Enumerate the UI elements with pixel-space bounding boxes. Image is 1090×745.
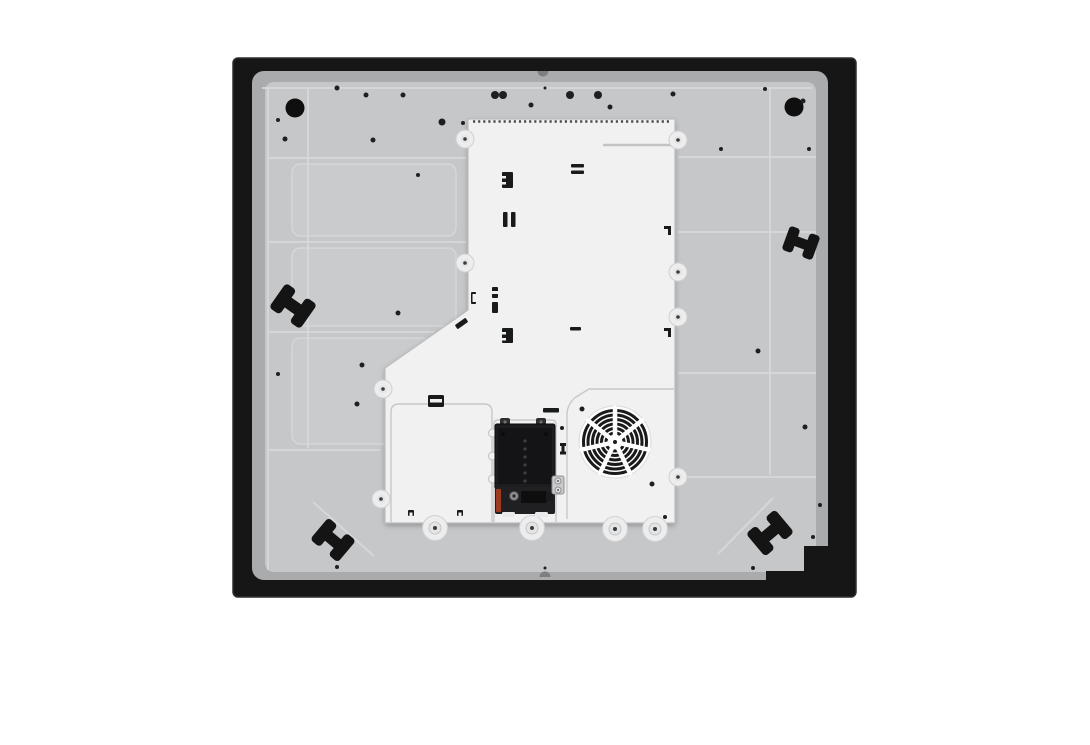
screw-dot: [276, 372, 280, 376]
connector-slit: [492, 291, 498, 294]
hob-underside-illustration: [0, 0, 1090, 745]
screw-dot: [360, 363, 365, 368]
connector-slit: [502, 332, 506, 335]
screw-dot: [803, 425, 808, 430]
screw-dot: [461, 121, 465, 125]
fan-screw: [650, 482, 655, 487]
product-image: [0, 0, 1090, 745]
screw-dot: [811, 535, 815, 539]
screw-dot: [335, 565, 339, 569]
screw-dot: [416, 173, 420, 177]
screw-dot: [594, 91, 602, 99]
screw-dot: [544, 87, 547, 90]
terminal-rivet: [523, 447, 526, 450]
screw-dot: [355, 402, 360, 407]
connector-mark: [668, 228, 671, 235]
fixing-hole: [286, 99, 305, 118]
screw-dot: [396, 311, 401, 316]
terminal-part: [535, 512, 548, 517]
terminal-rivet: [523, 479, 526, 482]
terminal-detail: [503, 420, 506, 423]
terminal-detail: [557, 489, 559, 491]
frame-step: [766, 571, 808, 583]
screw-dot: [283, 137, 288, 142]
connector-mark: [503, 212, 508, 227]
connector-mark: [571, 171, 584, 175]
terminal-part: [496, 489, 501, 512]
connector-mark: [502, 328, 513, 343]
connector-slit: [473, 294, 477, 302]
terminal-part: [521, 491, 547, 503]
screw-dot: [439, 119, 446, 126]
screw-dot: [751, 566, 755, 570]
connector-mark: [668, 330, 671, 337]
screw-dot: [499, 91, 507, 99]
connector-mark: [571, 164, 584, 168]
screw-dot: [401, 93, 406, 98]
connector-mark: [562, 446, 565, 452]
connector-slit: [502, 176, 506, 179]
connector-slit: [410, 513, 413, 517]
terminal-detail: [501, 432, 505, 436]
fan-hub-dot: [613, 440, 617, 444]
stiffening-cell: [292, 248, 456, 326]
terminal-rivet: [523, 455, 526, 458]
terminal-rivet: [523, 471, 526, 474]
screw-dot: [719, 147, 723, 151]
connector-mark: [502, 172, 513, 188]
terminal-detail: [539, 420, 542, 423]
screw-dot: [529, 103, 534, 108]
screw-dot: [364, 93, 369, 98]
screw-dot: [544, 567, 547, 570]
terminal-rivet: [523, 463, 526, 466]
connector-slit: [430, 399, 442, 403]
screw-dot: [491, 91, 499, 99]
screw-dot: [276, 118, 280, 122]
screw-dot: [371, 138, 376, 143]
screw-dot: [807, 147, 811, 151]
screw-dot: [335, 86, 340, 91]
screw-dot: [671, 92, 676, 97]
connector-mark: [492, 302, 498, 313]
frame-step: [804, 546, 834, 582]
terminal-detail: [512, 494, 515, 497]
connector-mark: [511, 212, 516, 227]
cover-screw-dot: [663, 515, 667, 519]
screw-dot: [566, 91, 574, 99]
connector-mark: [570, 327, 581, 331]
screw-dot: [756, 349, 761, 354]
terminal-rivet: [523, 439, 526, 442]
connector-slit: [502, 338, 506, 341]
terminal-box: [495, 418, 564, 517]
screw-dot: [818, 503, 822, 507]
screw-dot: [608, 105, 613, 110]
connector-mark: [543, 408, 559, 413]
fan-screw: [580, 407, 585, 412]
connector-slit: [502, 182, 506, 185]
cover-screw-dot: [560, 426, 564, 430]
terminal-detail: [544, 432, 548, 436]
terminal-part: [502, 512, 515, 517]
connector-mark: [560, 452, 566, 455]
screw-dot: [801, 99, 806, 104]
screw-dot: [763, 87, 767, 91]
terminal-detail: [557, 480, 559, 482]
connector-slit: [459, 513, 462, 517]
stiffening-cell: [292, 164, 456, 236]
connector-mark: [560, 443, 566, 446]
